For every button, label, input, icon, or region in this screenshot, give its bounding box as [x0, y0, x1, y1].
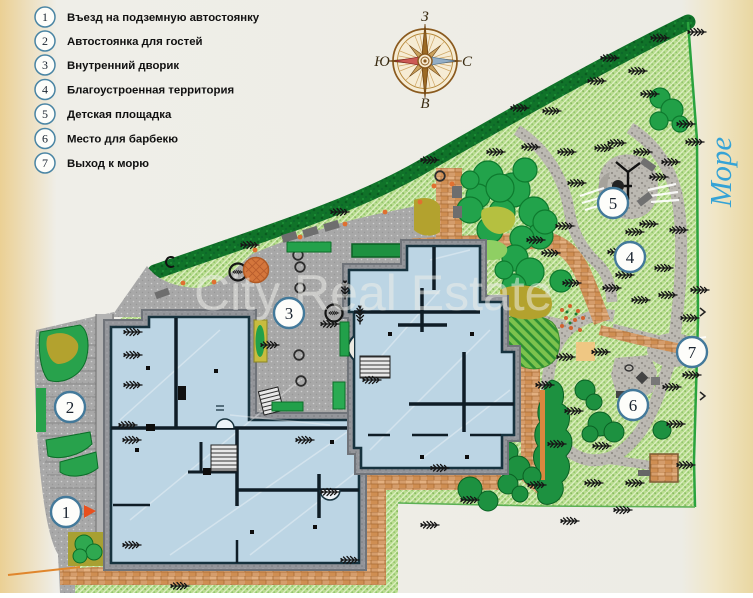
svg-text:1: 1	[62, 503, 71, 522]
svg-text:Выход к морю: Выход к морю	[67, 158, 149, 170]
svg-text:3: 3	[285, 304, 294, 323]
svg-text:Море: Море	[703, 137, 738, 208]
svg-text:Благоустроенная территория: Благоустроенная территория	[67, 84, 234, 96]
svg-text:2: 2	[66, 398, 75, 417]
svg-text:3: 3	[42, 58, 48, 72]
svg-text:5: 5	[42, 107, 48, 121]
svg-text:5: 5	[609, 194, 618, 213]
svg-text:4: 4	[42, 83, 48, 97]
svg-text:6: 6	[42, 132, 48, 146]
svg-text:Ю: Ю	[373, 54, 390, 70]
svg-text:Въезд на подземную автостоянку: Въезд на подземную автостоянку	[67, 12, 260, 24]
svg-text:Внутренний дворик: Внутренний дворик	[67, 60, 179, 72]
svg-text:Автостоянка для гостей: Автостоянка для гостей	[67, 36, 203, 48]
svg-text:1: 1	[42, 10, 48, 24]
svg-text:З: З	[421, 9, 429, 25]
svg-text:Место для барбекю: Место для барбекю	[67, 133, 178, 145]
svg-text:City Real Estate: City Real Estate	[194, 265, 552, 321]
svg-text:7: 7	[688, 343, 697, 362]
svg-text:С: С	[462, 54, 473, 70]
svg-text:7: 7	[42, 156, 48, 170]
svg-text:В: В	[420, 96, 429, 112]
svg-text:Детская площадка: Детская площадка	[67, 109, 172, 121]
svg-text:4: 4	[626, 248, 635, 267]
svg-text:6: 6	[629, 396, 638, 415]
svg-text:2: 2	[42, 34, 48, 48]
